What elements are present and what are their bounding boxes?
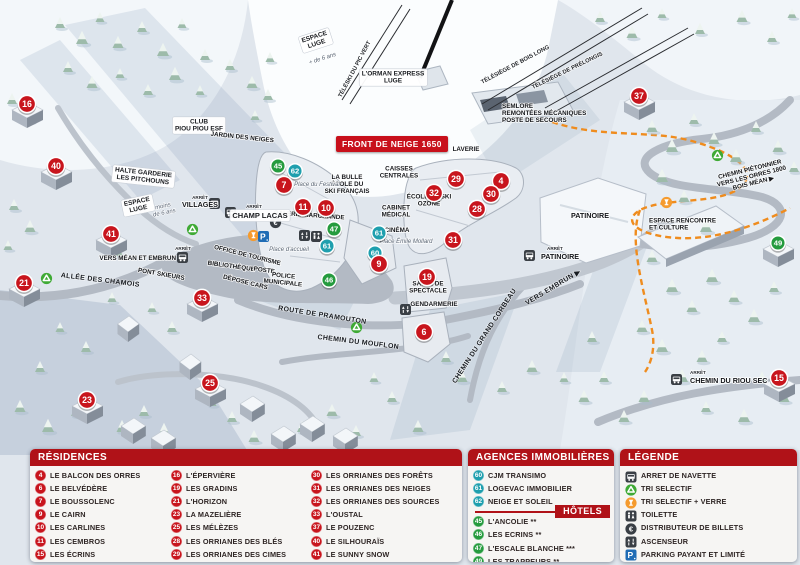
svg-text:4: 4 [499,176,504,186]
legend-panel-legende: LÉGENDE ARRET DE NAVETTETRI SELECTIFTRI … [620,449,797,562]
legend-item-label: LE SILHOURAÏS [326,537,384,546]
parking-icon: P [258,231,269,242]
legend-item: 29LES ORRIANES DES CIMES [171,548,311,561]
map-marker-10[interactable]: 10 [317,199,336,219]
legend-item: 61LOGEVAC IMMOBILIER [473,482,612,495]
legend-item-label: TOILETTE [641,510,677,519]
svg-text:7: 7 [282,180,287,190]
map-label: PATINOIRE [541,252,579,261]
legend-item: 28LES ORRIANES DES BLÉS [171,534,311,547]
legend-item-label: LE BELVÉDÈRE [50,484,107,493]
legend-item-label: LE POUZENC [326,523,375,532]
marker-number-badge: 15 [35,549,46,560]
svg-text:41: 41 [106,229,116,239]
legend-panel-residences: RÉSIDENCES 4LE BALCON DES ORRES6LE BELVÉ… [30,449,462,562]
legend-item: 32LES ORRIANES DES SOURCES [311,495,462,508]
map-marker-41[interactable]: 41 [102,225,121,245]
recycle-icon [712,150,723,161]
svg-text:P: P [627,550,633,560]
svg-text:CHEMIN DU RIOU SEC: CHEMIN DU RIOU SEC [690,376,767,385]
front-de-neige-banner: FRONT DE NEIGE 1650 [336,136,448,152]
legend-item-label: LE BALCON DES ORRES [50,471,140,480]
svg-text:62: 62 [291,167,299,176]
legend-item-label: LES ÉCRINS [50,550,95,559]
marker-number-badge: 10 [35,522,46,533]
legend-item: 21L'HORIZON [171,495,311,508]
legend-item-label: TRI SELECTIF [641,484,692,493]
svg-text:23: 23 [82,395,92,405]
legend-item: 40LE SILHOURAÏS [311,534,462,547]
svg-text:25: 25 [205,378,215,388]
legend-item: €DISTRIBUTEUR DE BILLETS [625,521,795,534]
agencies-list: 60CJM TRANSIMO61LOGEVAC IMMOBILIER62NEIG… [468,466,614,562]
legend-item-label: LE SUNNY SNOW [326,550,389,559]
svg-text:PATINOIRE: PATINOIRE [541,252,579,261]
legend-item: 37LE POUZENC [311,521,462,534]
marker-number-badge: 40 [311,536,322,547]
map-marker-47[interactable]: 47 [326,222,342,239]
marker-number-badge: 4 [35,470,46,481]
map-label: CAISSESCENTRALES [380,165,418,179]
map-marker-49[interactable]: 49 [770,236,786,253]
svg-text:33: 33 [197,293,207,303]
euro-icon: € [625,522,637,534]
svg-text:47: 47 [330,225,338,234]
svg-text:Place du Festival: Place du Festival [294,182,340,188]
map-marker-9[interactable]: 9 [370,255,389,275]
svg-text:PATINOIRE: PATINOIRE [571,211,609,220]
svg-text:CHAMP LACAS: CHAMP LACAS [232,211,287,220]
map-marker-16[interactable]: 16 [18,95,37,115]
map-marker-45[interactable]: 45 [270,159,286,176]
recycle-icon [187,224,198,235]
recycle-icon [41,273,52,284]
legend-item-label: L'ESCALE BLANCHE *** [488,544,575,553]
legend-item: 19LES GRADINS [171,482,311,495]
svg-text:9: 9 [377,259,382,269]
legend-item: 60CJM TRANSIMO [473,469,612,482]
marker-number-badge: 46 [473,529,484,540]
map-marker-6[interactable]: 6 [415,323,434,343]
map-label: L'ORMAN EXPRESSLUGE [359,69,427,86]
svg-text:ARRÊT: ARRÊT [192,193,208,200]
legend-item: 11LES CEMBROS [35,534,171,547]
svg-text:VILLAGES: VILLAGES [182,200,218,209]
legend-item: 46LES ECRINS ** [473,528,612,541]
svg-text:30: 30 [486,189,496,199]
legend-item-label: NEIGE ET SOLEIL [488,497,553,506]
legend-item-label: TRI SELECTIF + VERRE [641,497,727,506]
svg-text:6: 6 [422,327,427,337]
legend-item-label: LES ORRIANES DES FORÊTS [326,471,433,480]
svg-text:31: 31 [448,235,458,245]
map-label: Place Émile Mollard [379,238,433,245]
svg-text:21: 21 [19,278,29,288]
legend-item-label: PARKING PAYANT ET LIMITÉ [641,550,745,559]
svg-text:LAVERIE: LAVERIE [453,146,480,153]
legende-list: ARRET DE NAVETTETRI SELECTIFTRI SELECTIF… [620,466,797,562]
map-label: VERS MÉAN ET EMBRUN [99,253,176,262]
bus-icon [625,470,637,482]
bus-icon [177,252,188,263]
legend-item: 16L'ÉPERVIÈRE [171,469,311,482]
map-marker-61[interactable]: 61 [371,226,387,243]
marker-number-badge: 28 [171,536,182,547]
svg-text:40: 40 [51,161,61,171]
map-marker-23[interactable]: 23 [78,391,97,411]
legend-item: 25LES MÉLÈZES [171,521,311,534]
legend-item: 49LES TRAPPEURS ** [473,555,612,562]
residences-column: 4LE BALCON DES ORRES6LE BELVÉDÈRE7LE BOU… [35,469,171,561]
map-label: ARRÊT [690,368,706,375]
map-label: PATINOIRE [571,211,609,220]
svg-text:P: P [260,232,266,242]
legend-item-label: CJM TRANSIMO [488,471,546,480]
map-marker-33[interactable]: 33 [193,289,212,309]
residences-header: RÉSIDENCES [30,449,462,466]
svg-text:ARRÊT: ARRÊT [175,244,191,251]
map-marker-61[interactable]: 61 [319,239,335,256]
legend-item-label: LES TRAPPEURS ** [488,557,559,562]
marker-number-badge: 31 [311,483,322,494]
map-marker-29[interactable]: 29 [447,170,466,190]
marker-number-badge: 49 [473,556,484,562]
legend-item-label: LES ORRIANES DES BLÉS [186,537,282,546]
residences-column: 16L'ÉPERVIÈRE19LES GRADINS21L'HORIZON23L… [171,469,311,561]
map-marker-25[interactable]: 25 [201,374,220,394]
map-label: CHEMIN DU RIOU SEC [690,376,767,385]
map-label: Place du Festival [294,182,340,188]
legend-item: 9LE CAIRN [35,508,171,521]
elevator-icon [400,304,411,315]
svg-text:28: 28 [472,204,482,214]
map-label: ARRÊT [192,193,208,200]
svg-text:61: 61 [375,229,384,238]
legend-item: 47L'ESCALE BLANCHE *** [473,541,612,554]
hotels-header: HÔTELS [555,505,610,518]
legend-item-label: LES ORRIANES DES SOURCES [326,497,439,506]
svg-text:61: 61 [323,242,332,251]
elevator-icon [625,535,637,547]
svg-text:16: 16 [22,99,32,109]
map-marker-7[interactable]: 7 [275,176,294,196]
legend-item-label: LES MÉLÈZES [186,523,238,532]
marker-number-badge: 47 [473,543,484,554]
marker-number-badge: 37 [311,522,322,533]
marker-number-badge: 32 [311,496,322,507]
legend-panel-agencies-hotels: AGENCES IMMOBILIÈRES 60CJM TRANSIMO61LOG… [468,449,614,562]
legend-item-label: LES CEMBROS [50,537,105,546]
svg-text:ARRÊT: ARRÊT [690,368,706,375]
marker-number-badge: 11 [35,536,46,547]
map-label: CINÉMA [385,225,410,234]
svg-text:46: 46 [325,276,333,285]
legend-item: ARRET DE NAVETTE [625,469,795,482]
marker-number-badge: 30 [311,470,322,481]
marker-number-badge: 21 [171,496,182,507]
legend-item-label: LA MAZELIÈRE [186,510,241,519]
resort-map-screenshot: P€ L'ORMAN EXPRESSLUGETÉLÉSKI DU PIC VER… [0,0,800,565]
map-marker-21[interactable]: 21 [15,274,34,294]
svg-text:10: 10 [321,203,331,213]
agencies-header: AGENCES IMMOBILIÈRES [468,449,614,466]
map-marker-28[interactable]: 28 [468,200,487,220]
legend-item-label: LES ORRIANES DES NEIGES [326,484,431,493]
legend-item-label: LES ECRINS ** [488,530,541,539]
legend-item-label: LE BOUSSOLENC [50,497,115,506]
legend-item: ASCENSEUR [625,534,795,547]
residences-list: 4LE BALCON DES ORRES6LE BELVÉDÈRE7LE BOU… [30,466,462,562]
legend-item-label: LES GRADINS [186,484,238,493]
svg-text:VERS MÉAN ET EMBRUN: VERS MÉAN ET EMBRUN [99,253,176,262]
map-label: ARRÊT [246,202,262,209]
legend-item-label: L'OUSTAL [326,510,363,519]
legende-header: LÉGENDE [620,449,797,466]
legend-item: 33L'OUSTAL [311,508,462,521]
map-marker-19[interactable]: 19 [418,268,437,288]
map-label: GENDARMERIE [410,301,457,308]
legend-item-label: LOGEVAC IMMOBILIER [488,484,572,493]
marker-number-badge: 25 [171,522,182,533]
bus-icon [671,374,682,385]
svg-text:CINÉMA: CINÉMA [385,225,410,234]
svg-text:32: 32 [429,188,439,198]
wc-icon [311,231,322,242]
legend-item: TOILETTE [625,508,795,521]
legend-item: 6LE BELVÉDÈRE [35,482,171,495]
legend-item-label: L'ÉPERVIÈRE [186,471,235,480]
legend-item-label: DISTRIBUTEUR DE BILLETS [641,523,743,532]
marker-number-badge: 19 [171,483,182,494]
map-marker-15[interactable]: 15 [770,369,789,389]
marker-number-badge: 16 [171,470,182,481]
map-label: ARRÊT [175,244,191,251]
legend-item: 23LA MAZELIÈRE [171,508,311,521]
svg-text:Place d'accueil: Place d'accueil [269,247,310,253]
legend-item: TRI SELECTIF [625,482,795,495]
legend-item: PPARKING PAYANT ET LIMITÉ [625,548,795,561]
map-marker-30[interactable]: 30 [482,185,501,205]
legend-item: 41LE SUNNY SNOW [311,548,462,561]
marker-number-badge: 62 [473,496,484,507]
map-marker-46[interactable]: 46 [321,273,337,290]
marker-number-badge: 41 [311,549,322,560]
marker-number-badge: 33 [311,509,322,520]
legend-item-label: LE CAIRN [50,510,86,519]
map-label: LAVERIE [453,146,480,153]
svg-text:11: 11 [298,202,307,212]
svg-text:15: 15 [774,373,784,383]
map-label: CABINETMÉDICAL [382,204,411,218]
legend-item: 4LE BALCON DES ORRES [35,469,171,482]
map-marker-11[interactable]: 11 [294,198,313,218]
map-marker-37[interactable]: 37 [630,87,649,107]
legend-item: 7LE BOUSSOLENC [35,495,171,508]
svg-text:ARRÊT: ARRÊT [547,244,563,251]
legend-item: 15LES ÉCRINS [35,548,171,561]
marker-number-badge: 9 [35,509,46,520]
legend-item: 10LES CARLINES [35,521,171,534]
glass-icon [248,230,259,241]
marker-number-badge: 7 [35,496,46,507]
legend-item: 30LES ORRIANES DES FORÊTS [311,469,462,482]
legend-item-label: ASCENSEUR [641,537,688,546]
legend-item-label: LES ORRIANES DES CIMES [186,550,286,559]
marker-number-badge: 23 [171,509,182,520]
map-marker-40[interactable]: 40 [47,157,66,177]
marker-number-badge: 6 [35,483,46,494]
svg-text:Place Émile Mollard: Place Émile Mollard [379,238,433,245]
map-label: VILLAGES [182,200,218,209]
marker-number-badge: 61 [473,483,484,494]
legend-item-label: L'ANCOLIE ** [488,517,537,526]
map-label: CHAMP LACAS [230,210,290,222]
map-marker-31[interactable]: 31 [444,231,463,251]
svg-text:29: 29 [451,174,461,184]
legend-item-label: L'HORIZON [186,497,227,506]
legend-item-label: LES CARLINES [50,523,105,532]
marker-number-badge: 45 [473,516,484,527]
marker-number-badge: 60 [473,470,484,481]
map-label: ARRÊT [547,244,563,251]
bus-icon [524,250,535,261]
wc-icon [625,509,637,521]
legend-item: 31LES ORRIANES DES NEIGES [311,482,462,495]
svg-text:49: 49 [774,239,782,248]
svg-text:CABINETMÉDICAL: CABINETMÉDICAL [382,204,411,218]
recycle-icon [625,483,637,495]
marker-number-badge: 29 [171,549,182,560]
legend-item-label: ARRET DE NAVETTE [641,471,716,480]
svg-text:CAISSESCENTRALES: CAISSESCENTRALES [380,165,418,179]
map-label: Place d'accueil [269,247,310,253]
parking-icon: P [625,548,637,560]
residences-column: 30LES ORRIANES DES FORÊTS31LES ORRIANES … [311,469,462,561]
glass-icon [625,496,637,508]
glass-icon [661,197,672,208]
hotels-separator: HÔTELS [475,511,610,513]
svg-text:19: 19 [422,272,432,282]
svg-text:GENDARMERIE: GENDARMERIE [410,301,457,308]
elevator-icon [299,230,310,241]
map-marker-32[interactable]: 32 [425,184,444,204]
svg-text:ARRÊT: ARRÊT [246,202,262,209]
legend-item: TRI SELECTIF + VERRE [625,495,795,508]
svg-text:37: 37 [634,91,644,101]
svg-text:45: 45 [274,162,283,171]
